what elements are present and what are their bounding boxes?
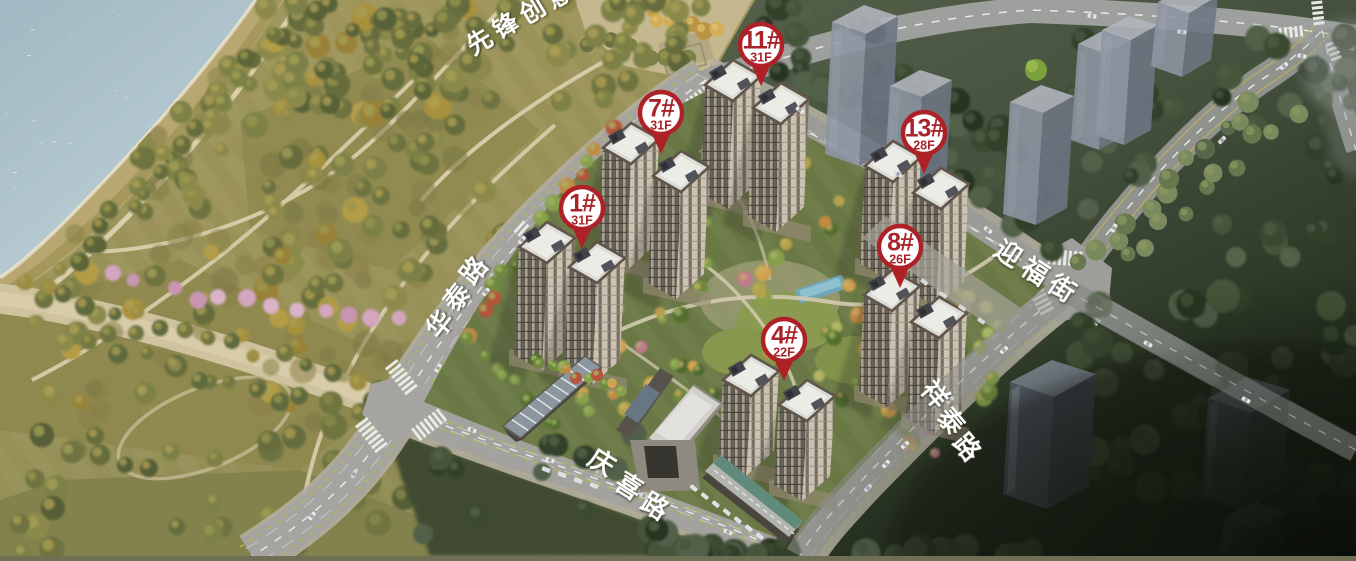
svg-text:22F: 22F: [773, 346, 795, 360]
svg-text:31F: 31F: [750, 51, 772, 65]
svg-text:31F: 31F: [650, 119, 672, 133]
svg-text:28F: 28F: [913, 139, 935, 153]
svg-text:31F: 31F: [571, 214, 593, 228]
svg-text:26F: 26F: [889, 253, 911, 267]
